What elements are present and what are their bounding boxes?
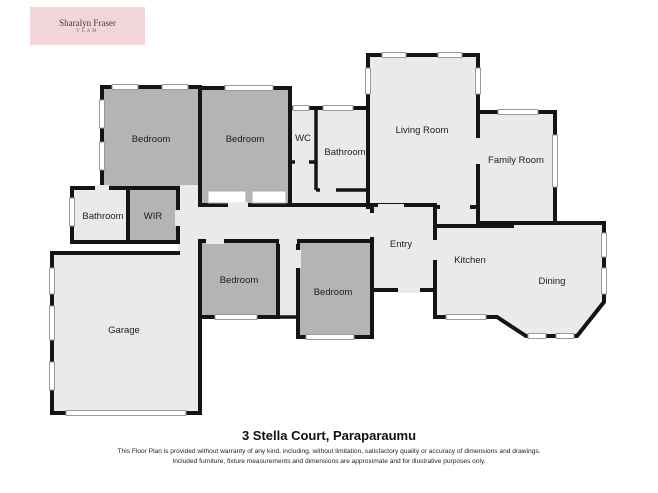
window-marker (306, 335, 354, 340)
door-opening (378, 204, 404, 210)
door-opening (432, 240, 438, 260)
door-opening (295, 250, 301, 268)
window-marker (602, 233, 607, 257)
label-wc: WC (295, 133, 311, 144)
disclaimer: This Floor Plan is provided without warr… (0, 447, 658, 467)
room-bedroom-2 (200, 88, 290, 205)
window-marker (50, 362, 55, 390)
disclaimer-line-2: Included furniture, fixture measurements… (0, 457, 658, 467)
window-marker (382, 53, 406, 58)
closet (252, 191, 286, 203)
door-opening (295, 159, 309, 165)
room-fill (478, 112, 555, 223)
label-garage: Garage (108, 325, 140, 336)
brand-subtitle: TEAM (76, 28, 98, 35)
door-opening (228, 202, 248, 208)
label-bathroom-2: Bathroom (82, 211, 123, 222)
window-marker (50, 268, 55, 294)
garage-vehicle-door (66, 411, 186, 416)
door-opening (320, 187, 336, 193)
door-opening (440, 204, 470, 210)
label-bedroom-1: Bedroom (132, 134, 171, 145)
window-marker (50, 306, 55, 340)
label-bedroom-2: Bedroom (226, 134, 265, 145)
window-marker (293, 106, 309, 111)
window-marker (446, 315, 486, 320)
door-opening (369, 213, 375, 237)
window-marker (498, 110, 538, 115)
page-title: 3 Stella Court, Paraparaumu (0, 428, 658, 443)
window-marker (100, 100, 105, 128)
window-marker (476, 68, 481, 94)
front-door-opening (398, 287, 420, 293)
label-living: Living Room (396, 125, 449, 136)
brand-name: Sharalyn Fraser (59, 18, 116, 28)
door-opening (175, 210, 181, 226)
label-bedroom-3: Bedroom (220, 275, 259, 286)
disclaimer-line-1: This Floor Plan is provided without warr… (0, 447, 658, 457)
door-opening (206, 238, 224, 244)
hallway-connector (178, 188, 200, 253)
bay-window-marker (528, 334, 546, 339)
closet (208, 191, 246, 203)
window-marker (323, 106, 353, 111)
window-marker (553, 135, 558, 187)
window-marker (112, 85, 138, 90)
label-bathroom-1: Bathroom (324, 147, 365, 158)
label-family: Family Room (488, 155, 544, 166)
door-opening (475, 138, 481, 164)
window-marker (366, 68, 371, 94)
door-opening (95, 185, 109, 191)
floorplan-page: Bedroom Bedroom WC Bathroom Living Room … (0, 0, 658, 493)
garage-door-opening (180, 250, 198, 256)
floorplan-drawing: Bedroom Bedroom WC Bathroom Living Room … (0, 0, 658, 493)
window-marker (225, 86, 273, 91)
label-entry: Entry (390, 239, 412, 250)
label-bedroom-4: Bedroom (314, 287, 353, 298)
door-opening (180, 185, 198, 191)
window-marker (100, 142, 105, 170)
room-fill (200, 88, 290, 205)
window-marker (438, 53, 462, 58)
window-marker (215, 315, 257, 320)
room-family (478, 112, 555, 223)
door-opening (279, 238, 297, 244)
bay-window-marker (556, 334, 574, 339)
label-kitchen: Kitchen (454, 255, 486, 266)
window-marker (162, 85, 188, 90)
window-marker (602, 268, 607, 294)
label-dining: Dining (539, 276, 566, 287)
window-marker (70, 198, 75, 226)
brand-logo: Sharalyn Fraser TEAM (30, 7, 145, 45)
label-wir: WIR (144, 211, 163, 222)
